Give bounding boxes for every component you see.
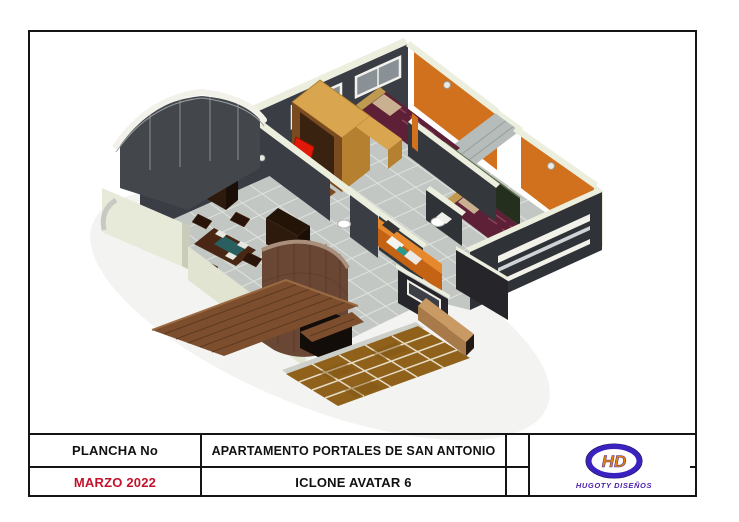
date-label: MARZO 2022: [30, 468, 200, 496]
logo-company-name: HUGOTY DISEÑOS: [576, 481, 652, 490]
sheet-border: [28, 30, 697, 497]
hd-logo-icon: HD HUGOTY DISEÑOS: [530, 435, 697, 495]
company-logo: HD HUGOTY DISEÑOS: [530, 435, 697, 495]
plan-sheet: PLANCHA No MARZO 2022 APARTAMENTO PORTAL…: [0, 0, 739, 522]
logo-monogram: HD: [602, 452, 627, 471]
titleblock-col-divider-2: [505, 433, 507, 497]
plancha-label: PLANCHA No: [30, 435, 200, 466]
project-title: APARTAMENTO PORTALES DE SAN ANTONIO: [202, 435, 505, 466]
sheet-subtitle: ICLONE AVATAR 6: [202, 468, 505, 496]
